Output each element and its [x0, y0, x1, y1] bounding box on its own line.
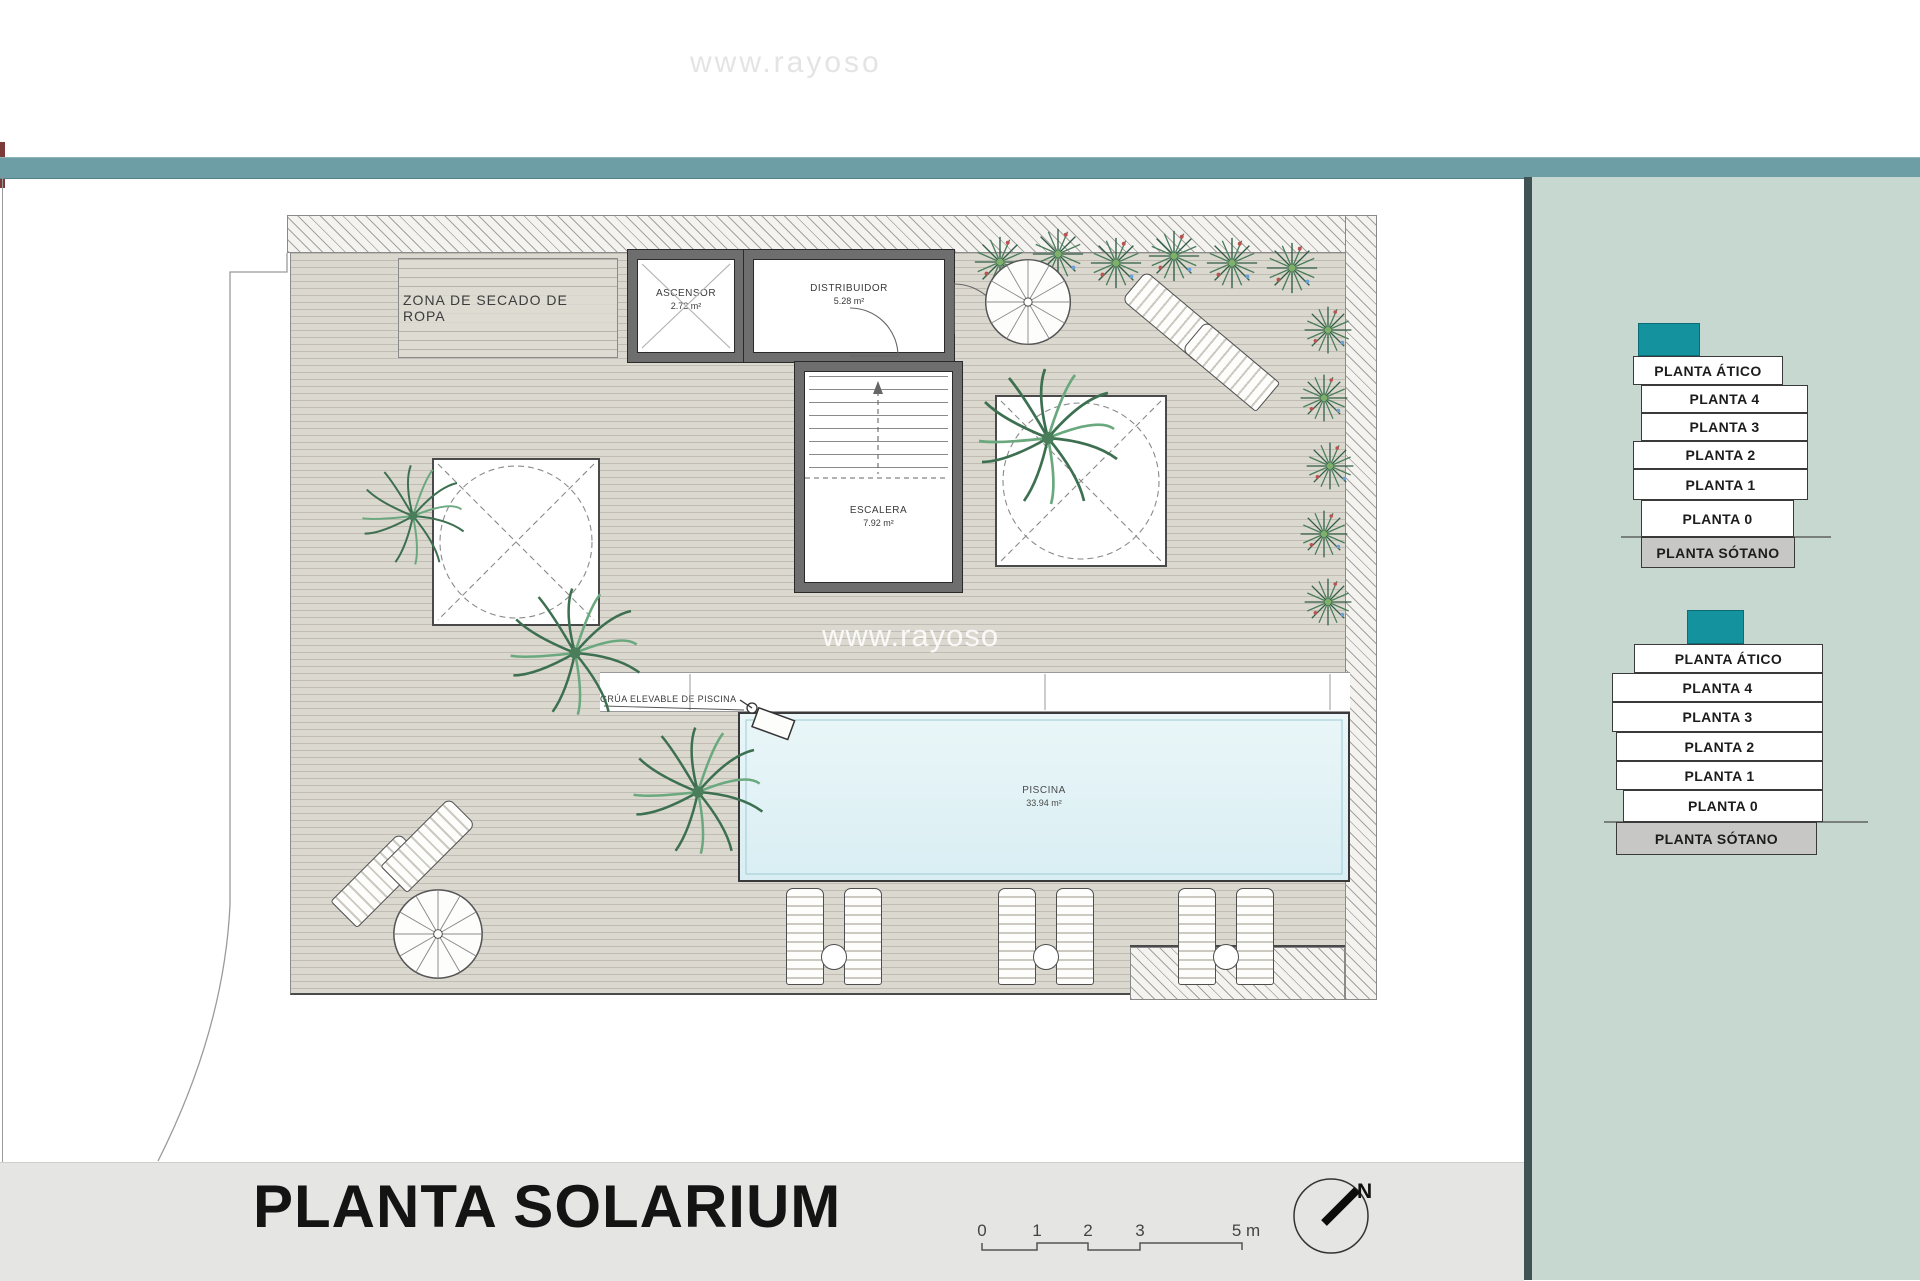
scale-2: 2	[1083, 1221, 1092, 1240]
level-row-basement: PLANTA SÓTANO	[1616, 822, 1817, 855]
level-row: PLANTA 3	[1612, 702, 1823, 732]
lounger	[1178, 888, 1216, 985]
level-row: PLANTA 2	[1616, 732, 1823, 761]
parasol-bottom-left	[394, 890, 482, 978]
level-row: PLANTA 1	[1616, 761, 1823, 790]
level-row: PLANTA 3	[1641, 413, 1808, 441]
watermark-plan: www.rayoso	[822, 618, 999, 654]
lounger	[1236, 888, 1274, 985]
elevator-cross	[642, 264, 730, 348]
floor-plan-page: { "watermark": { "top": "www.rayoso", "p…	[0, 0, 1920, 1280]
deck-joints	[690, 674, 1330, 710]
level-row: PLANTA 0	[1623, 790, 1823, 822]
hoist-leader-line	[604, 706, 744, 710]
scale-3: 3	[1135, 1221, 1144, 1240]
pool-inner-line	[746, 720, 1342, 874]
lounger	[786, 888, 824, 985]
level-row: PLANTA 4	[1641, 385, 1808, 413]
stair-arrow	[873, 381, 883, 394]
lounger	[1056, 888, 1094, 985]
parasol-top-right	[986, 260, 1071, 345]
side-table	[1213, 944, 1239, 970]
plan-title: PLANTA SOLARIUM	[253, 1172, 841, 1241]
scale-5m: 5 m	[1232, 1221, 1260, 1240]
plant-column-right	[1301, 307, 1354, 626]
level-row: PLANTA ÁTICO	[1634, 644, 1823, 673]
level-row: PLANTA 2	[1633, 441, 1808, 469]
skylight-right-geometry	[1001, 401, 1161, 561]
north-indicator: N	[1294, 1179, 1372, 1253]
level-row: PLANTA 1	[1633, 469, 1808, 500]
side-table	[821, 944, 847, 970]
level-row: PLANTA ÁTICO	[1633, 356, 1783, 385]
stair-guide-line	[805, 382, 946, 478]
door-swing-stair	[850, 308, 898, 356]
solarium-highlight-block	[1687, 610, 1744, 644]
scale-1: 1	[1032, 1221, 1041, 1240]
palms	[362, 369, 1117, 854]
scale-0: 0	[977, 1221, 986, 1240]
level-row: PLANTA 0	[1641, 500, 1794, 537]
lounger	[844, 888, 882, 985]
solarium-highlight-block	[1638, 323, 1700, 356]
scale-bar: 0 1 2 3 5 m	[977, 1221, 1260, 1250]
plot-boundary-line	[158, 253, 287, 1161]
level-row: PLANTA 4	[1612, 673, 1823, 702]
lounger	[998, 888, 1036, 985]
level-row-basement: PLANTA SÓTANO	[1641, 537, 1795, 568]
north-letter: N	[1357, 1180, 1372, 1203]
side-table	[1033, 944, 1059, 970]
